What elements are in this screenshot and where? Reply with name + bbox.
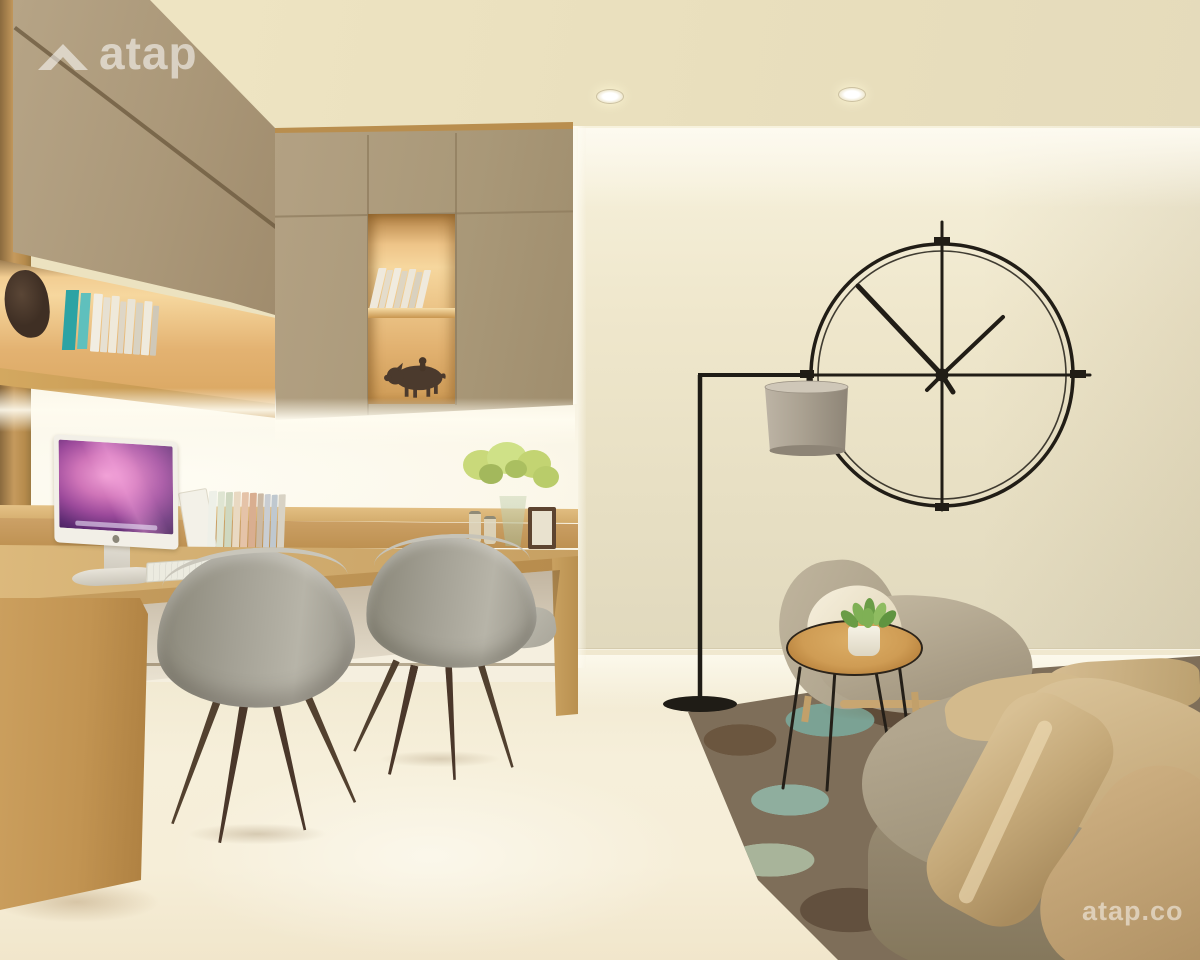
atap-logo-text: atap <box>99 26 198 80</box>
cove-light-glow <box>578 128 1200 208</box>
recessed-downlight <box>596 89 624 104</box>
interior-render: atap atap.co <box>0 0 1200 960</box>
pig-figurine <box>384 352 450 400</box>
under-shelf-light <box>0 388 276 432</box>
imac-screen <box>59 439 174 534</box>
shelf-books <box>90 289 170 356</box>
under-cabinet-light <box>275 398 575 446</box>
niche-books <box>369 266 451 310</box>
imac-dock <box>75 521 157 531</box>
cabinet-door-seam <box>455 133 457 405</box>
chair-shadow <box>165 820 350 848</box>
chair-shadow <box>360 748 520 770</box>
recessed-downlight <box>838 87 866 102</box>
photo-frame <box>528 507 556 549</box>
apple-logo <box>112 535 119 543</box>
desk-books <box>207 485 295 554</box>
atap-watermark-logo: atap <box>36 26 198 80</box>
roof-icon <box>36 32 90 74</box>
succulent-plant <box>834 592 894 638</box>
imac-computer <box>54 434 179 550</box>
desk-pedestal <box>0 588 148 918</box>
atap-watermark-footer: atap.co <box>1082 896 1184 927</box>
niche-shelf <box>368 308 455 318</box>
